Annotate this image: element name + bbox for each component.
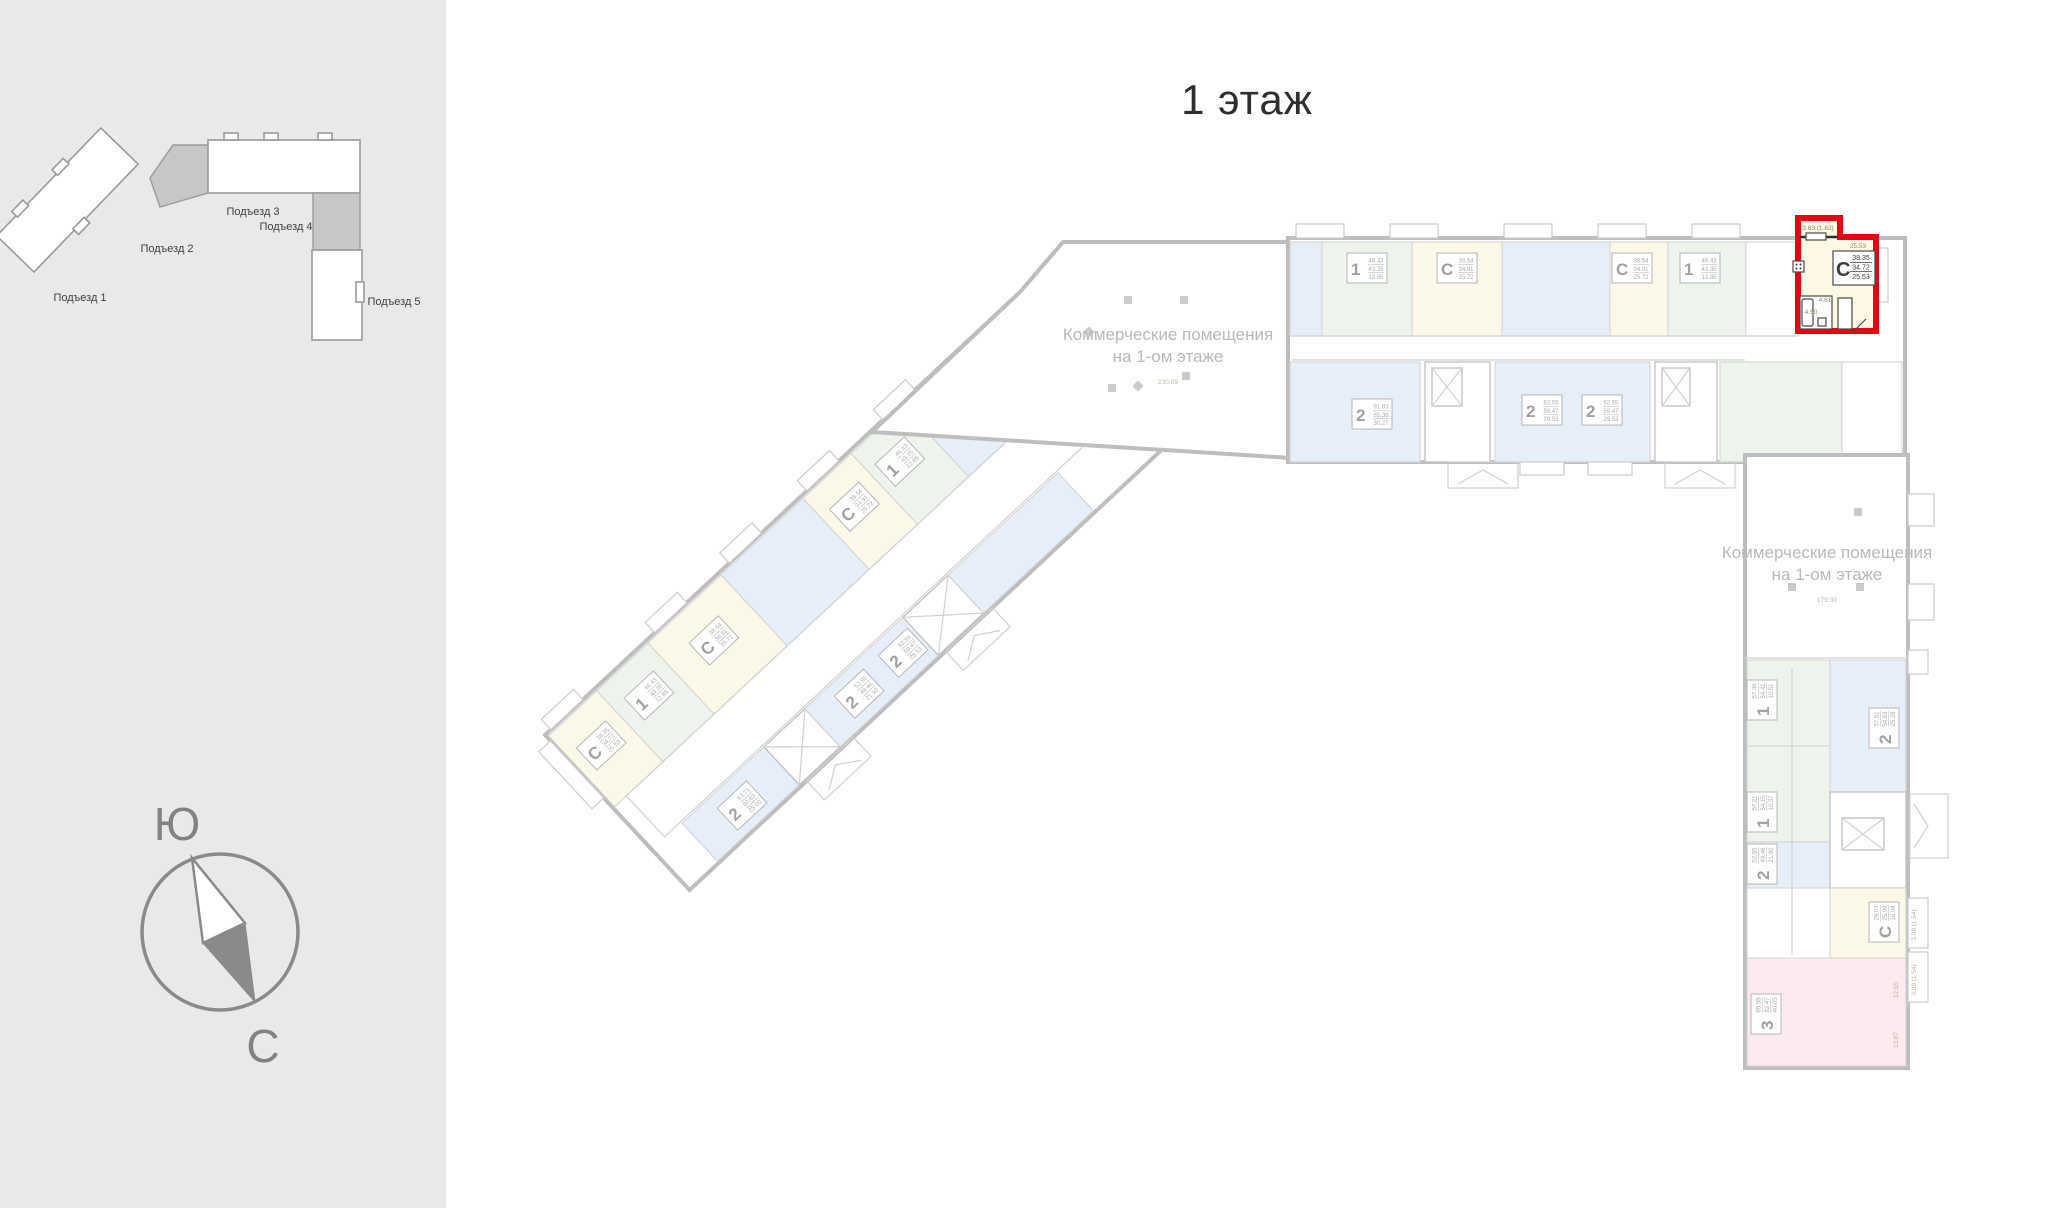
minimap-entrance-4-shape[interactable] xyxy=(313,193,360,250)
svg-text:21.90: 21.90 xyxy=(1769,847,1775,863)
minimap-entrance-3-shape[interactable] xyxy=(208,133,360,193)
apartment-label[interactable]: 2 57.51 54.63 25.28 xyxy=(1869,708,1899,748)
minimap-junction-shape[interactable] xyxy=(150,145,208,207)
svg-text:3: 3 xyxy=(1758,1021,1777,1030)
entrance-porch xyxy=(1910,794,1948,858)
svg-text:1: 1 xyxy=(1684,260,1693,279)
commercial-right-line2: на 1-ом этаже xyxy=(1772,565,1883,584)
svg-text:4.50: 4.50 xyxy=(1805,309,1818,316)
svg-text:3.63 (1.82): 3.63 (1.82) xyxy=(1802,225,1833,232)
svg-text:38.54: 38.54 xyxy=(1458,259,1474,265)
svg-text:62.55: 62.55 xyxy=(1603,401,1619,407)
balcony-dim: 3.08 (1.54) xyxy=(1911,909,1918,940)
svg-text:46.43: 46.43 xyxy=(1368,259,1384,265)
column xyxy=(1182,372,1190,380)
svg-text:С: С xyxy=(1876,926,1895,938)
svg-text:25.99: 25.99 xyxy=(1883,905,1889,921)
commercial-top-line2: на 1-ом этаже xyxy=(1113,347,1224,366)
svg-text:46.43: 46.43 xyxy=(1701,259,1717,265)
apartment-label[interactable]: 2 62.55 59.47 29.53 xyxy=(1582,395,1622,425)
svg-text:59.47: 59.47 xyxy=(1603,409,1619,415)
balcony-dim: 3.08 (1.54) xyxy=(1911,964,1918,995)
svg-text:82.47: 82.47 xyxy=(1765,997,1771,1013)
svg-text:2: 2 xyxy=(1356,406,1365,425)
svg-text:1: 1 xyxy=(1754,707,1773,716)
sidebar: Подъезд 1 Подъезд 2 Подъезд 3 Подъезд 4 … xyxy=(0,0,446,1208)
apartment-label[interactable]: 1 46.43 43.35 12.85 xyxy=(1680,253,1720,283)
minimap-label-entrance-4: Подъезд 4 xyxy=(259,221,312,233)
svg-text:25.53: 25.53 xyxy=(1852,274,1870,281)
svg-text:1: 1 xyxy=(1754,819,1773,828)
minimap-label-entrance-3: Подъезд 3 xyxy=(226,206,279,218)
svg-text:10.51: 10.51 xyxy=(1769,683,1775,699)
commercial-area-top: Коммерческие помещения на 1-ом этаже 230… xyxy=(872,242,1290,458)
sidebar-graphics: Подъезд 1 Подъезд 2 Подъезд 3 Подъезд 4 … xyxy=(0,0,446,1208)
svg-text:25.53: 25.53 xyxy=(1850,243,1867,250)
svg-text:29.53: 29.53 xyxy=(1603,417,1619,423)
wing-vertical: Коммерческие помещения на 1-ом этаже 179… xyxy=(1722,455,1948,1068)
room-dim: 13.87 xyxy=(1893,1031,1900,1048)
column xyxy=(1180,296,1188,304)
apartment-label[interactable]: С 38.54 34.91 25.72 xyxy=(1437,253,1477,283)
commercial-right-area: 179.30 xyxy=(1817,597,1837,604)
column xyxy=(1108,384,1116,392)
svg-text:30.27: 30.27 xyxy=(1373,421,1389,427)
svg-text:85.55: 85.55 xyxy=(1757,997,1763,1013)
compass: Ю С xyxy=(142,798,298,1072)
apartment-label[interactable]: С 38.54 34.91 25.72 xyxy=(1612,253,1652,283)
minimap-label-entrance-5: Подъезд 5 xyxy=(367,296,420,308)
svg-text:38.35: 38.35 xyxy=(1852,255,1870,262)
svg-text:С: С xyxy=(1441,260,1453,279)
commercial-top-area: 230.09 xyxy=(1158,379,1178,386)
svg-text:25.28: 25.28 xyxy=(1891,711,1897,727)
commercial-right-line1: Коммерческие помещения xyxy=(1722,543,1932,562)
minimap-entrance-5-shape[interactable] xyxy=(312,250,364,340)
svg-text:62.55: 62.55 xyxy=(1543,401,1559,407)
svg-text:59.47: 59.47 xyxy=(1543,409,1559,415)
closet xyxy=(1838,298,1852,329)
stove-icon xyxy=(1793,261,1804,272)
svg-text:85.38: 85.38 xyxy=(1373,413,1389,419)
svg-text:29.07: 29.07 xyxy=(1875,905,1881,921)
svg-text:38.54: 38.54 xyxy=(1633,259,1649,265)
column xyxy=(1854,508,1862,516)
apartment-label[interactable]: 1 57.49 54.41 10.51 xyxy=(1747,680,1777,720)
svg-text:43.35: 43.35 xyxy=(1701,267,1717,273)
svg-text:16.08: 16.08 xyxy=(1891,905,1897,921)
svg-text:49.46: 49.46 xyxy=(1761,847,1767,863)
column xyxy=(1124,296,1132,304)
svg-text:С: С xyxy=(1616,260,1628,279)
svg-text:2: 2 xyxy=(1876,735,1895,744)
column xyxy=(1856,583,1864,591)
svg-text:1: 1 xyxy=(1351,260,1360,279)
svg-text:29.53: 29.53 xyxy=(1543,417,1559,423)
entrance-porch xyxy=(1665,462,1735,488)
apartment-label[interactable]: 3 85.55 82.47 40.03 xyxy=(1751,994,1781,1034)
building-minimap: Подъезд 1 Подъезд 2 Подъезд 3 Подъезд 4 … xyxy=(0,124,421,340)
commercial-top-line1: Коммерческие помещения xyxy=(1063,325,1273,344)
apartment-label[interactable]: 2 52.55 49.46 21.90 xyxy=(1747,844,1777,884)
apartment-label[interactable]: С 29.07 25.99 16.08 xyxy=(1869,902,1899,942)
minimap-entrance-1-2-shape[interactable] xyxy=(0,124,143,276)
svg-text:43.35: 43.35 xyxy=(1368,267,1384,273)
svg-text:34.91: 34.91 xyxy=(1458,267,1474,273)
svg-text:25.72: 25.72 xyxy=(1458,275,1474,281)
svg-text:12.85: 12.85 xyxy=(1368,275,1384,281)
svg-text:57.49: 57.49 xyxy=(1753,683,1759,699)
svg-text:91.83: 91.83 xyxy=(1373,405,1389,411)
svg-text:34.91: 34.91 xyxy=(1633,267,1649,273)
svg-text:4.61: 4.61 xyxy=(1819,297,1832,304)
compass-south-label: Ю xyxy=(154,798,200,850)
svg-text:2: 2 xyxy=(1586,402,1595,421)
compass-north-label: С xyxy=(246,1020,279,1072)
svg-text:54.63: 54.63 xyxy=(1883,711,1889,727)
apartment-label[interactable]: 1 57.21 54.15 10.37 xyxy=(1747,792,1777,832)
svg-text:10.37: 10.37 xyxy=(1769,795,1775,811)
window xyxy=(1806,233,1826,240)
minimap-label-entrance-2: Подъезд 2 xyxy=(140,243,193,255)
svg-text:2: 2 xyxy=(1754,871,1773,880)
room-dim: 12.95 xyxy=(1893,981,1900,998)
svg-text:52.55: 52.55 xyxy=(1753,847,1759,863)
sink-icon xyxy=(1818,318,1826,326)
highlighted-apartment[interactable]: С 38.35 34.72 25.53 3.63 (1.82) 25.53 4.… xyxy=(1793,218,1876,331)
apartment-label[interactable]: 2 62.55 59.47 29.53 xyxy=(1522,395,1562,425)
entrance-porch xyxy=(1448,462,1518,488)
svg-text:34.72: 34.72 xyxy=(1852,265,1870,272)
minimap-label-entrance-1: Подъезд 1 xyxy=(53,292,106,304)
svg-text:40.03: 40.03 xyxy=(1773,997,1779,1013)
svg-text:С: С xyxy=(1836,259,1850,281)
svg-text:57.51: 57.51 xyxy=(1875,711,1881,727)
apartment-label[interactable]: 1 46.43 43.35 12.85 xyxy=(1347,253,1387,283)
highlighted-apartment-label: С 38.35 34.72 25.53 xyxy=(1833,251,1875,285)
svg-text:12.85: 12.85 xyxy=(1701,275,1717,281)
column xyxy=(1788,583,1796,591)
svg-text:25.72: 25.72 xyxy=(1633,275,1649,281)
svg-text:2: 2 xyxy=(1526,402,1535,421)
svg-text:57.21: 57.21 xyxy=(1753,795,1759,811)
svg-text:54.41: 54.41 xyxy=(1761,683,1767,699)
floor-plan: С 38.35 34.72 25.53 1 46.43 43.35 12.85 … xyxy=(446,0,2048,1208)
svg-text:54.15: 54.15 xyxy=(1761,795,1767,811)
apartment-label[interactable]: 2 91.83 85.38 30.27 xyxy=(1352,399,1392,429)
